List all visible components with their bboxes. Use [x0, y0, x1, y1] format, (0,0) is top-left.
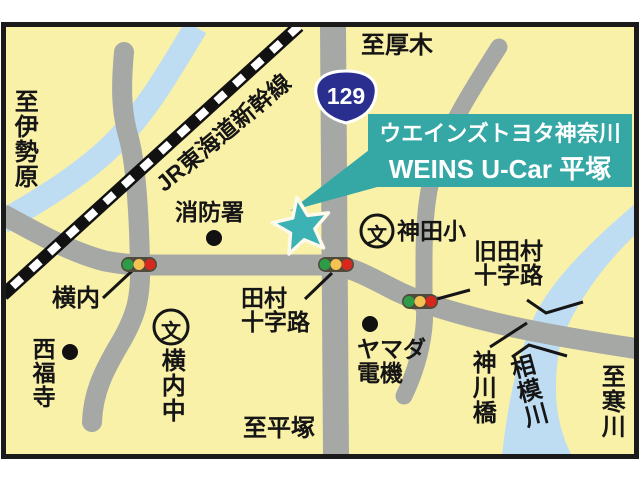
yamada-denki-dot [362, 316, 378, 332]
yokouchi-junior-high-label: 横内中 [158, 348, 183, 423]
yokouchi-label: 横内 [52, 286, 100, 311]
yamada-line1: ヤマダ [357, 337, 426, 361]
fire-station-dot [206, 230, 222, 246]
tamura-crossing-label: 田村 十字路 [241, 286, 310, 334]
signal-yokouchi [121, 257, 157, 272]
store-callout-company: ウエインズトヨタ神奈川 [379, 116, 621, 148]
tamura-line2: 十字路 [241, 310, 310, 334]
tamura-line1: 田村 [241, 286, 310, 310]
nishifukuji-label: 西福寺 [30, 337, 54, 409]
direction-east-label: 至寒川 [598, 364, 623, 439]
kyu-tamura-crossing-label: 旧田村 十字路 [474, 239, 543, 287]
store-access-map: 至厚木 至伊勢原 至平塚 至寒川 JR東海道新幹線 129 ウエインズトヨタ神奈… [0, 0, 640, 480]
nishifukuji-dot [62, 344, 78, 360]
kangawa-bridge-label: 神川橋 [469, 350, 494, 425]
kanda-elementary-label: 神田小 [397, 219, 466, 243]
kyu-tamura-line1: 旧田村 [474, 239, 543, 263]
yamada-line2: 電機 [357, 361, 426, 385]
direction-west-label: 至伊勢原 [11, 89, 36, 189]
direction-north-label: 至厚木 [361, 33, 433, 58]
signal-kyu-tamura [402, 294, 438, 309]
kyu-tamura-line2: 十字路 [474, 263, 543, 287]
fire-station-label: 消防署 [175, 200, 244, 224]
route-number-text: 129 [316, 83, 376, 110]
yokouchi-school-mark: 文 [160, 315, 182, 344]
store-callout: ウエインズトヨタ神奈川 WEINS U-Car 平塚 [368, 114, 632, 187]
store-callout-name: WEINS U-Car 平塚 [389, 149, 611, 186]
signal-tamura [318, 257, 354, 272]
yamada-denki-label: ヤマダ 電機 [357, 337, 426, 385]
kanda-school-mark: 文 [366, 219, 388, 248]
direction-south-label: 至平塚 [243, 416, 315, 441]
